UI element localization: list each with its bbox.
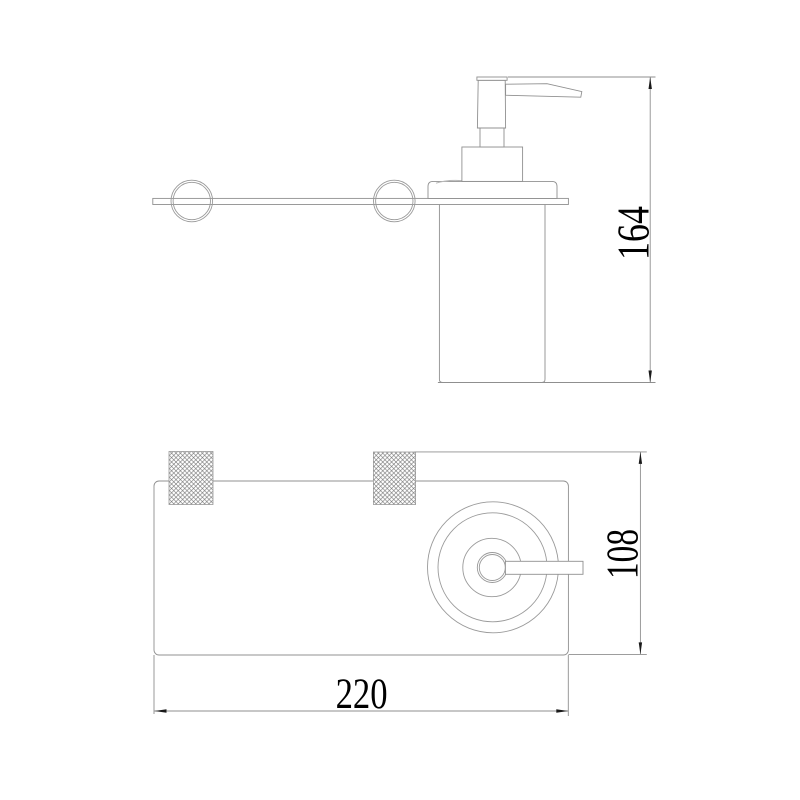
svg-text:108: 108 <box>598 529 648 579</box>
svg-text:220: 220 <box>336 671 388 718</box>
svg-text:164: 164 <box>609 206 659 260</box>
